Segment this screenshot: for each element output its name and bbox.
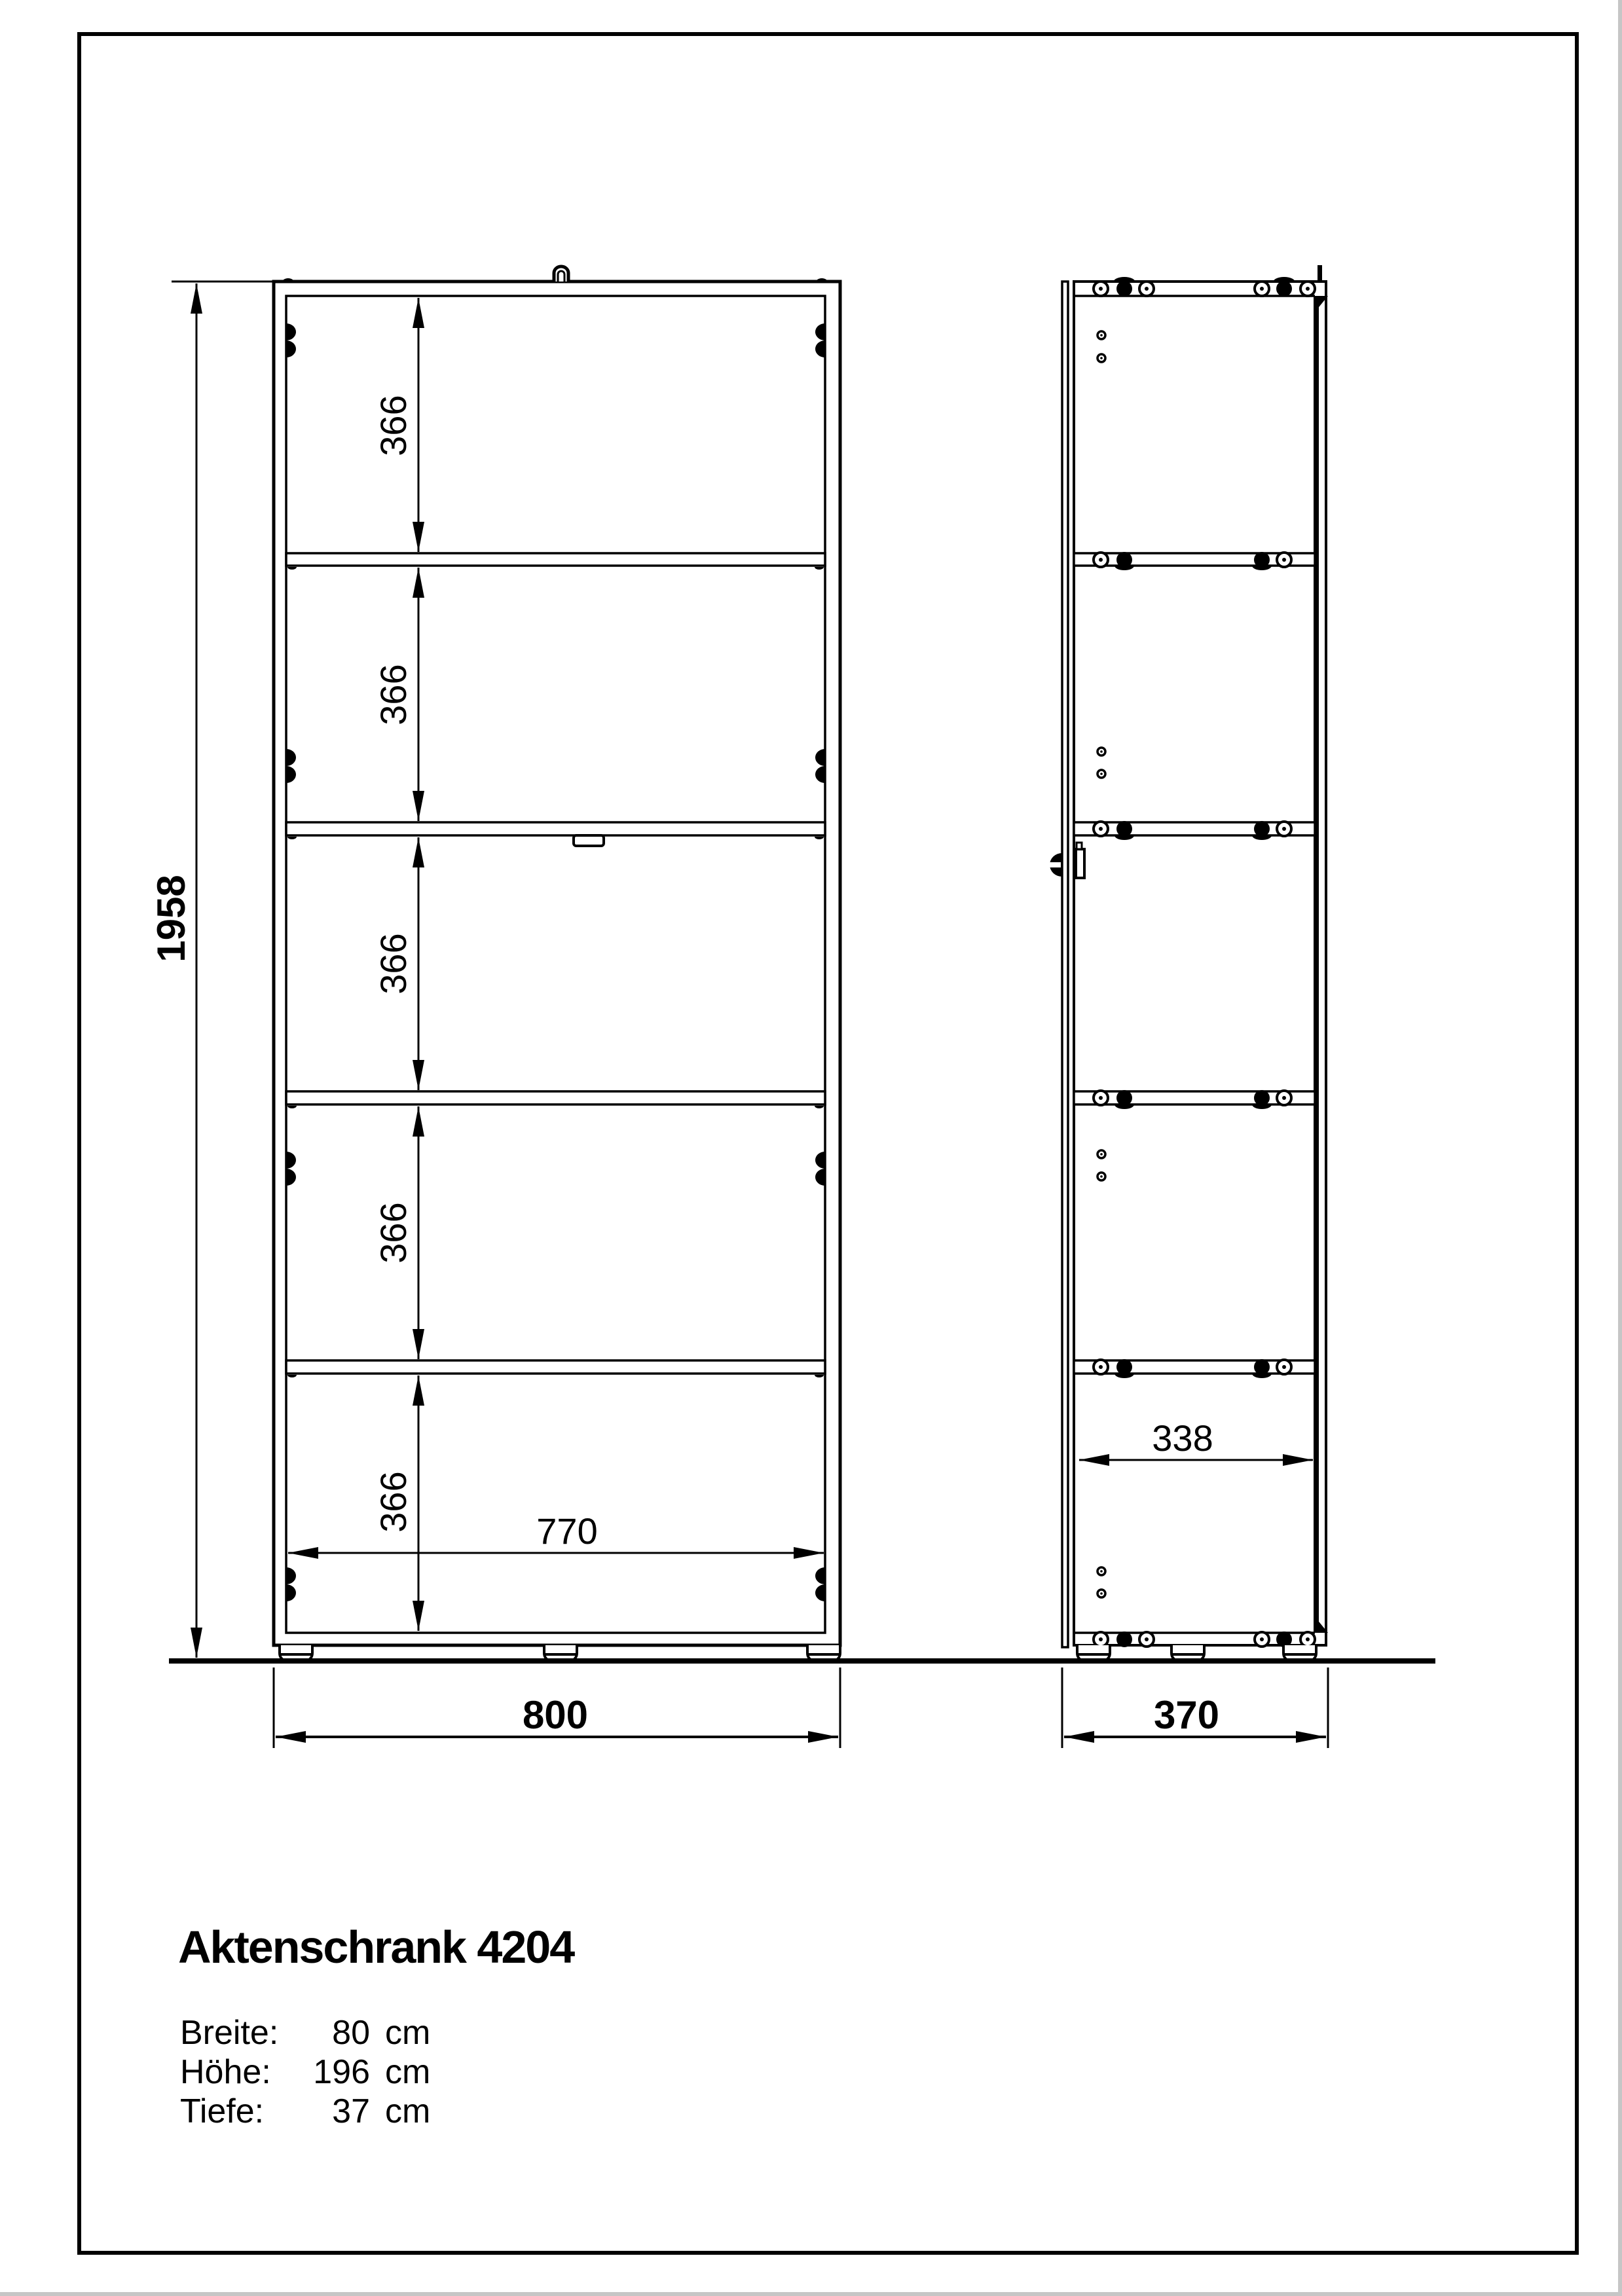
spec-unit: cm — [385, 2092, 430, 2130]
hanger-loop — [554, 266, 568, 282]
dim-label-outer-depth: 370 — [1154, 1693, 1219, 1737]
dim-label-total-height: 1958 — [149, 875, 193, 962]
dim-label-compartment: 366 — [373, 1471, 414, 1532]
floor-line — [169, 1658, 1435, 1664]
dim-label-compartment: 366 — [373, 933, 414, 994]
spec-unit: cm — [385, 2053, 430, 2091]
cam-hole — [1254, 1359, 1270, 1375]
top-cap — [816, 278, 828, 282]
front-carcass-outline — [274, 282, 840, 1645]
side-door-edge — [1062, 282, 1068, 1647]
drawing-title: Aktenschrank 4204 — [178, 1922, 575, 1973]
lock-body — [1076, 849, 1084, 878]
spec-value: 37 — [332, 2092, 370, 2130]
dim-label-outer-width: 800 — [523, 1693, 588, 1737]
cam-hole — [1276, 1631, 1292, 1647]
spec-value: 80 — [332, 2014, 370, 2052]
lock-body-nub — [1077, 843, 1082, 849]
dim-label-inner-width: 770 — [536, 1510, 597, 1552]
page-edge-right — [1618, 0, 1622, 2296]
side-back-panel — [1314, 296, 1319, 1633]
spec-value: 196 — [313, 2053, 370, 2091]
spec-label: Tiefe: — [180, 2092, 264, 2130]
shelf — [286, 1091, 825, 1104]
front-view — [274, 266, 840, 1661]
cam-hole — [1254, 552, 1270, 568]
cam-hole — [1116, 821, 1132, 837]
spec-unit: cm — [385, 2014, 430, 2052]
dim-label-inner-depth: 338 — [1152, 1417, 1213, 1459]
hanger-loop-side — [1318, 265, 1322, 282]
cam-hole — [1116, 1359, 1132, 1375]
cam-hole — [1254, 1090, 1270, 1106]
shelf — [286, 1360, 825, 1374]
shelf — [286, 553, 825, 566]
dim-label-compartment: 366 — [373, 664, 414, 725]
dim-label-compartment: 366 — [373, 1202, 414, 1263]
dim-label-compartment: 366 — [373, 395, 414, 456]
shelf — [286, 822, 825, 835]
shelf-latch — [574, 835, 604, 846]
top-cap — [282, 278, 294, 282]
drawing-page: 1958 366 366 366 366 366 770 800 338 370… — [0, 0, 1622, 2296]
cam-hole — [1116, 1631, 1132, 1647]
spec-label: Breite: — [180, 2014, 278, 2052]
page-edge-bottom — [0, 2292, 1622, 2296]
cam-hole — [1254, 821, 1270, 837]
spec-label: Höhe: — [180, 2053, 271, 2091]
cam-hole — [1116, 552, 1132, 568]
lock-knob-slot — [1038, 862, 1061, 867]
spec-table: Breite: 80 cm Höhe: 196 cm Tiefe: 37 cm — [180, 2014, 430, 2130]
cam-hole — [1276, 281, 1292, 297]
cam-hole — [1116, 281, 1132, 297]
cam-hole — [1116, 1090, 1132, 1106]
